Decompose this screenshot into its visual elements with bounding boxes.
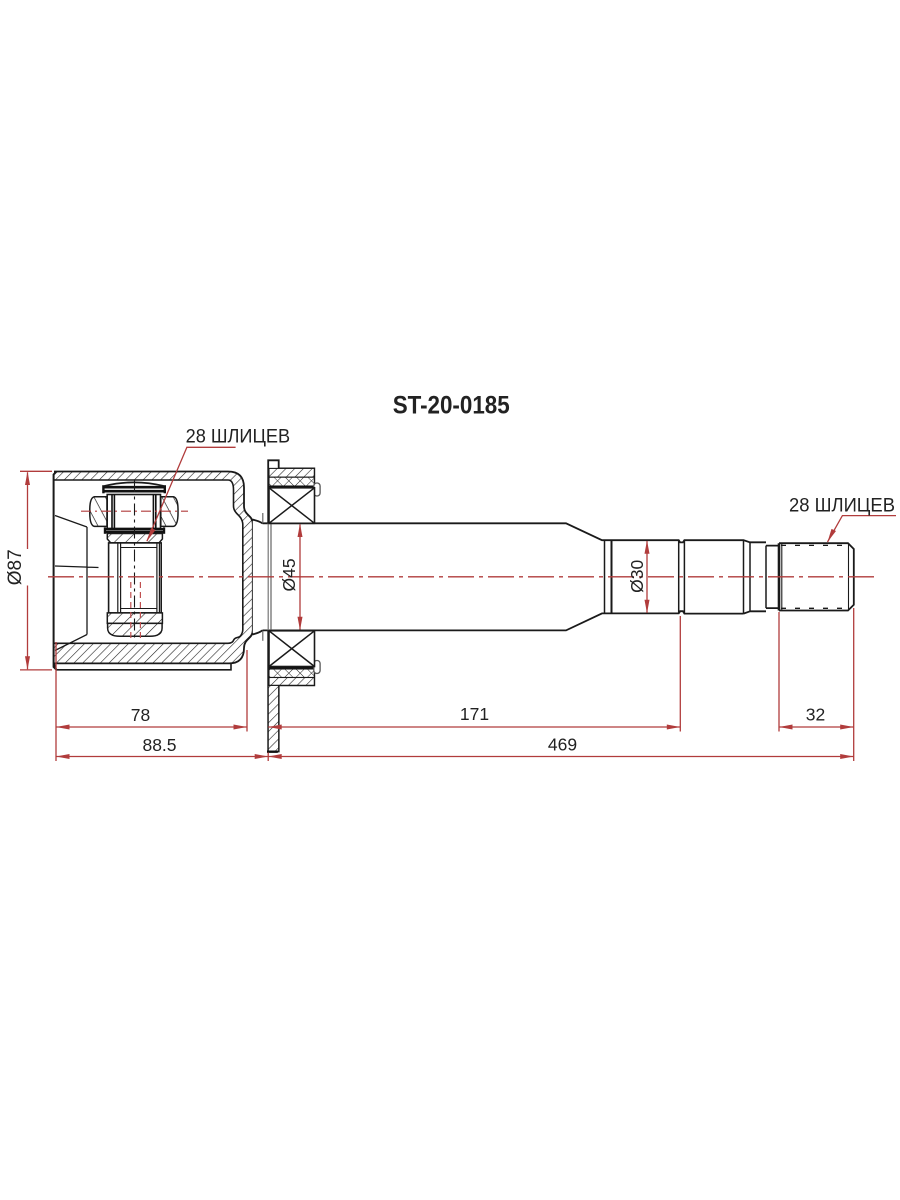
svg-text:Ø87: Ø87 (5, 549, 26, 585)
svg-text:32: 32 (806, 705, 825, 725)
svg-text:Ø45: Ø45 (279, 558, 299, 591)
svg-text:28 ШЛИЦЕВ: 28 ШЛИЦЕВ (789, 495, 895, 517)
svg-text:469: 469 (548, 735, 577, 755)
svg-text:ST-20-0185: ST-20-0185 (393, 392, 510, 420)
svg-text:88.5: 88.5 (142, 735, 176, 755)
svg-text:78: 78 (131, 705, 150, 725)
svg-text:28 ШЛИЦЕВ: 28 ШЛИЦЕВ (186, 426, 291, 448)
svg-text:171: 171 (460, 704, 489, 724)
svg-text:Ø30: Ø30 (627, 559, 647, 592)
